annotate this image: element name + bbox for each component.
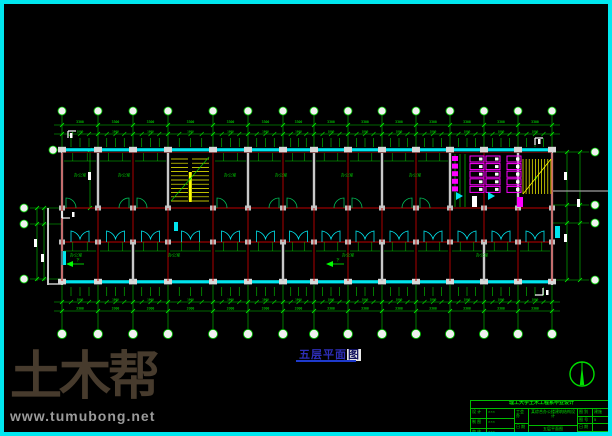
svg-text:3300: 3300: [76, 307, 84, 311]
svg-text:办公室: 办公室: [70, 252, 83, 259]
svg-text:3300: 3300: [429, 120, 437, 124]
drawing-title-underline: [296, 360, 356, 362]
svg-text:1800: 1800: [362, 298, 369, 302]
svg-text:3300: 3300: [395, 307, 403, 311]
title-block-project: 某综合办公楼建筑结构设计: [529, 409, 577, 426]
svg-text:1800: 1800: [112, 298, 119, 302]
svg-text:3300: 3300: [463, 307, 471, 311]
svg-text:3300: 3300: [295, 120, 303, 124]
svg-text:1800: 1800: [396, 298, 403, 302]
tb-label: 工会办: [515, 409, 528, 424]
svg-text:3300: 3300: [327, 120, 335, 124]
svg-text:3300: 3300: [187, 307, 195, 311]
svg-text:1800: 1800: [77, 298, 84, 302]
tb-value: ×××: [487, 429, 514, 436]
svg-text:办公室: 办公室: [275, 172, 288, 179]
svg-text:1800: 1800: [498, 130, 505, 134]
svg-text:3300: 3300: [262, 307, 270, 311]
svg-text:办公室: 办公室: [341, 172, 354, 179]
title-block-drawing-name: 五层平面图: [529, 426, 577, 436]
svg-text:1800: 1800: [262, 130, 269, 134]
svg-text:3300: 3300: [395, 120, 403, 124]
svg-text:3300: 3300: [76, 120, 84, 124]
cad-viewport: 3300180018003300330018001800330033001800…: [0, 0, 612, 436]
svg-text:3300: 3300: [147, 120, 155, 124]
svg-text:1800: 1800: [532, 298, 539, 302]
svg-text:1800: 1800: [328, 298, 335, 302]
svg-text:3300: 3300: [531, 120, 539, 124]
svg-text:办公室: 办公室: [476, 252, 489, 259]
svg-text:1800: 1800: [112, 130, 119, 134]
svg-text:1800: 1800: [464, 298, 471, 302]
svg-text:1800: 1800: [295, 298, 302, 302]
tb-value: 1:100: [593, 432, 612, 436]
svg-text:1800: 1800: [147, 130, 154, 134]
toilet-block: [452, 154, 523, 207]
svg-text:办公室: 办公室: [342, 252, 355, 259]
tb-value: [593, 424, 612, 431]
title-block-mid: 工会办 日 期: [515, 409, 529, 436]
svg-text:3300: 3300: [112, 307, 120, 311]
svg-text:3300: 3300: [361, 307, 369, 311]
svg-text:1800: 1800: [262, 298, 269, 302]
svg-text:3300: 3300: [361, 120, 369, 124]
svg-text:下: 下: [188, 178, 192, 182]
svg-text:3300: 3300: [497, 307, 505, 311]
svg-text:3300: 3300: [262, 120, 270, 124]
svg-text:3300: 3300: [497, 120, 505, 124]
title-block-meta: 图 别建施 图 号5 日 期 比 例1:100: [578, 409, 612, 436]
title-block-signatures: 设 计××× 制 图××× 审 核×××: [471, 409, 515, 436]
tb-label: 审 核: [471, 429, 487, 436]
svg-text:3300: 3300: [531, 307, 539, 311]
watermark-brand: 土木帮: [10, 348, 190, 406]
tb-label: 日 期: [578, 424, 593, 431]
svg-text:3300: 3300: [327, 307, 335, 311]
svg-text:下: 下: [336, 258, 340, 262]
svg-text:1800: 1800: [227, 130, 234, 134]
svg-text:1800: 1800: [187, 298, 194, 302]
watermark: 土木帮 www.tumubong.net: [10, 348, 190, 424]
tb-value: ×××: [487, 409, 514, 418]
svg-text:3300: 3300: [187, 120, 195, 124]
tb-label: 设 计: [471, 409, 487, 418]
svg-text:3300: 3300: [227, 120, 235, 124]
svg-text:1800: 1800: [464, 130, 471, 134]
svg-text:下: 下: [534, 177, 538, 181]
svg-text:1800: 1800: [430, 130, 437, 134]
svg-text:3300: 3300: [295, 307, 303, 311]
watermark-url: www.tumubong.net: [10, 408, 190, 424]
svg-text:1800: 1800: [362, 130, 369, 134]
svg-text:3300: 3300: [112, 120, 120, 124]
svg-text:1800: 1800: [328, 130, 335, 134]
svg-text:3300: 3300: [227, 307, 235, 311]
tb-label: 图 号: [578, 417, 593, 424]
tb-label: 比 例: [578, 432, 593, 436]
svg-text:办公室: 办公室: [409, 172, 422, 179]
svg-text:3300: 3300: [429, 307, 437, 311]
svg-text:3300: 3300: [147, 307, 155, 311]
title-block: 理工大学土木工程系毕业设计 设 计××× 制 图××× 审 核××× 工会办 日…: [470, 400, 612, 436]
tb-value: 建施: [593, 409, 612, 416]
svg-text:1800: 1800: [498, 298, 505, 302]
svg-text:1800: 1800: [187, 130, 194, 134]
svg-text:办公室: 办公室: [74, 172, 87, 179]
svg-text:1800: 1800: [532, 130, 539, 134]
tb-label: 制 图: [471, 419, 487, 428]
tb-label: 日 期: [515, 424, 528, 436]
corridor-annotations: 下下: [66, 258, 344, 267]
tb-label: 图 别: [578, 409, 593, 416]
svg-text:1800: 1800: [430, 298, 437, 302]
svg-text:办公室: 办公室: [168, 252, 181, 259]
svg-text:办公室: 办公室: [118, 172, 131, 179]
svg-text:下: 下: [76, 258, 80, 262]
svg-text:1800: 1800: [396, 130, 403, 134]
svg-text:3300: 3300: [463, 120, 471, 124]
north-arrow-icon: [570, 362, 594, 386]
svg-text:1800: 1800: [295, 130, 302, 134]
tb-value: ×××: [487, 419, 514, 428]
staircase-center: 下: [171, 157, 209, 202]
staircase-right: 下: [523, 159, 551, 194]
svg-text:1800: 1800: [147, 298, 154, 302]
title-block-header: 理工大学土木工程系毕业设计: [471, 401, 612, 409]
column-lines: [62, 153, 552, 281]
tb-value: 5: [593, 417, 612, 424]
svg-text:1800: 1800: [227, 298, 234, 302]
svg-text:1800: 1800: [77, 130, 84, 134]
svg-text:办公室: 办公室: [224, 172, 237, 179]
